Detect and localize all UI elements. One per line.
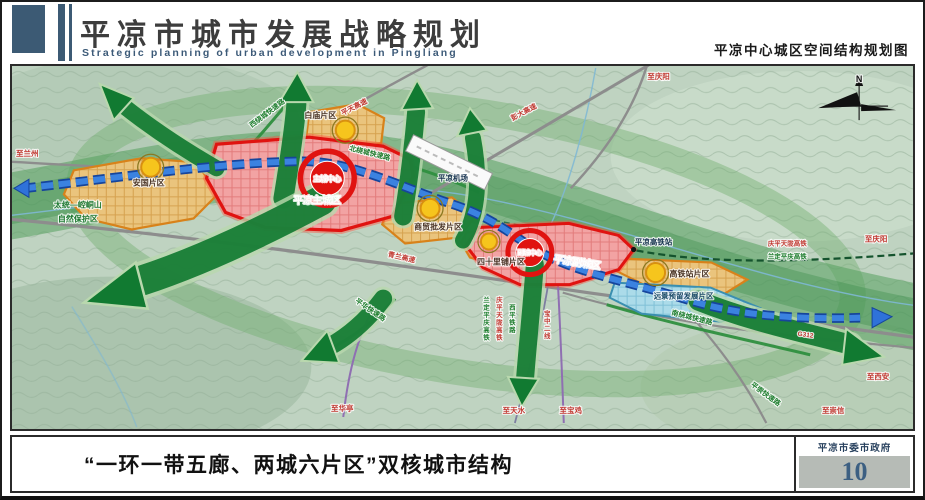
- main-core-label: 主城中心: [313, 174, 341, 183]
- hsr-district-label: 高铁站片区: [670, 269, 710, 279]
- compass-n-label: N: [856, 74, 862, 84]
- ldpq-hsr-label: 兰定平庆高铁: [768, 252, 807, 261]
- node-trade: [417, 195, 443, 221]
- dir-baoji-label: 至宝鸡: [560, 405, 583, 415]
- node-anguo: [138, 154, 164, 180]
- node-hsr: [643, 260, 669, 286]
- dir-lanzhou-label: 至兰州: [16, 148, 38, 158]
- logo-square: [12, 5, 45, 53]
- baimiao-label: 白庙片区: [304, 110, 336, 120]
- page-number: 10: [799, 456, 910, 488]
- nature-reserve-label-1: 太统—崆峒山: [53, 199, 102, 209]
- page: 平凉市城市发展战略规划 Strategic planning of urban …: [0, 0, 925, 500]
- node-sishilipu: [478, 230, 500, 252]
- sishilipu-label: 四十里铺片区: [477, 257, 525, 267]
- main-city-label: 平凉主城区: [294, 194, 342, 206]
- dir-qingyang-north-label: 至庆阳: [647, 71, 669, 81]
- hsr-station-label: 平凉高铁站: [635, 236, 673, 246]
- dir-chongxin-label: 至崇信: [822, 405, 845, 415]
- map-title: 平凉中心城区空间结构规划图: [714, 39, 909, 59]
- nature-reserve-label-2: 自然保护区: [58, 213, 98, 223]
- map-frame: N 平凉主城区 平凉副城区 主城中心 副城中心 安国片区 白庙片区 商贸批发片区…: [10, 64, 915, 431]
- header: 平凉市城市发展战略规划 Strategic planning of urban …: [2, 2, 923, 64]
- caption-bar: “一环一带五廊、两城六片区”双核城市结构 平凉市委市政府 10: [10, 435, 915, 493]
- node-baimiao: [332, 117, 358, 143]
- dir-qingyang-east-label: 至庆阳: [865, 233, 887, 243]
- planning-map: N 平凉主城区 平凉副城区 主城中心 副城中心 安国片区 白庙片区 商贸批发片区…: [12, 66, 913, 429]
- page-subtitle-en: Strategic planning of urban development …: [82, 47, 458, 59]
- anguo-label: 安国片区: [133, 177, 165, 187]
- trade-label: 商贸批发片区: [414, 221, 462, 231]
- page-number-box: 平凉市委市政府 10: [794, 437, 913, 491]
- sub-core-label: 副城中心: [518, 249, 543, 257]
- agency-label: 平凉市委市政府: [796, 437, 913, 456]
- airport-label: 平凉机场: [438, 172, 468, 182]
- map-caption: “一环一带五廊、两城六片区”双核城市结构: [12, 437, 794, 491]
- reserved-label: 远景预留发展片区: [654, 291, 714, 301]
- dir-huating-label: 至华亭: [331, 403, 354, 413]
- logo-bar: [58, 4, 65, 61]
- dir-xian-label: 至西安: [867, 371, 890, 381]
- hsr-station-dot: [631, 247, 636, 252]
- logo-bar-thin: [69, 4, 72, 61]
- dir-tianshui-label: 至天水: [503, 405, 526, 415]
- qptl-hsr-label: 庆平天陇高铁: [767, 238, 807, 247]
